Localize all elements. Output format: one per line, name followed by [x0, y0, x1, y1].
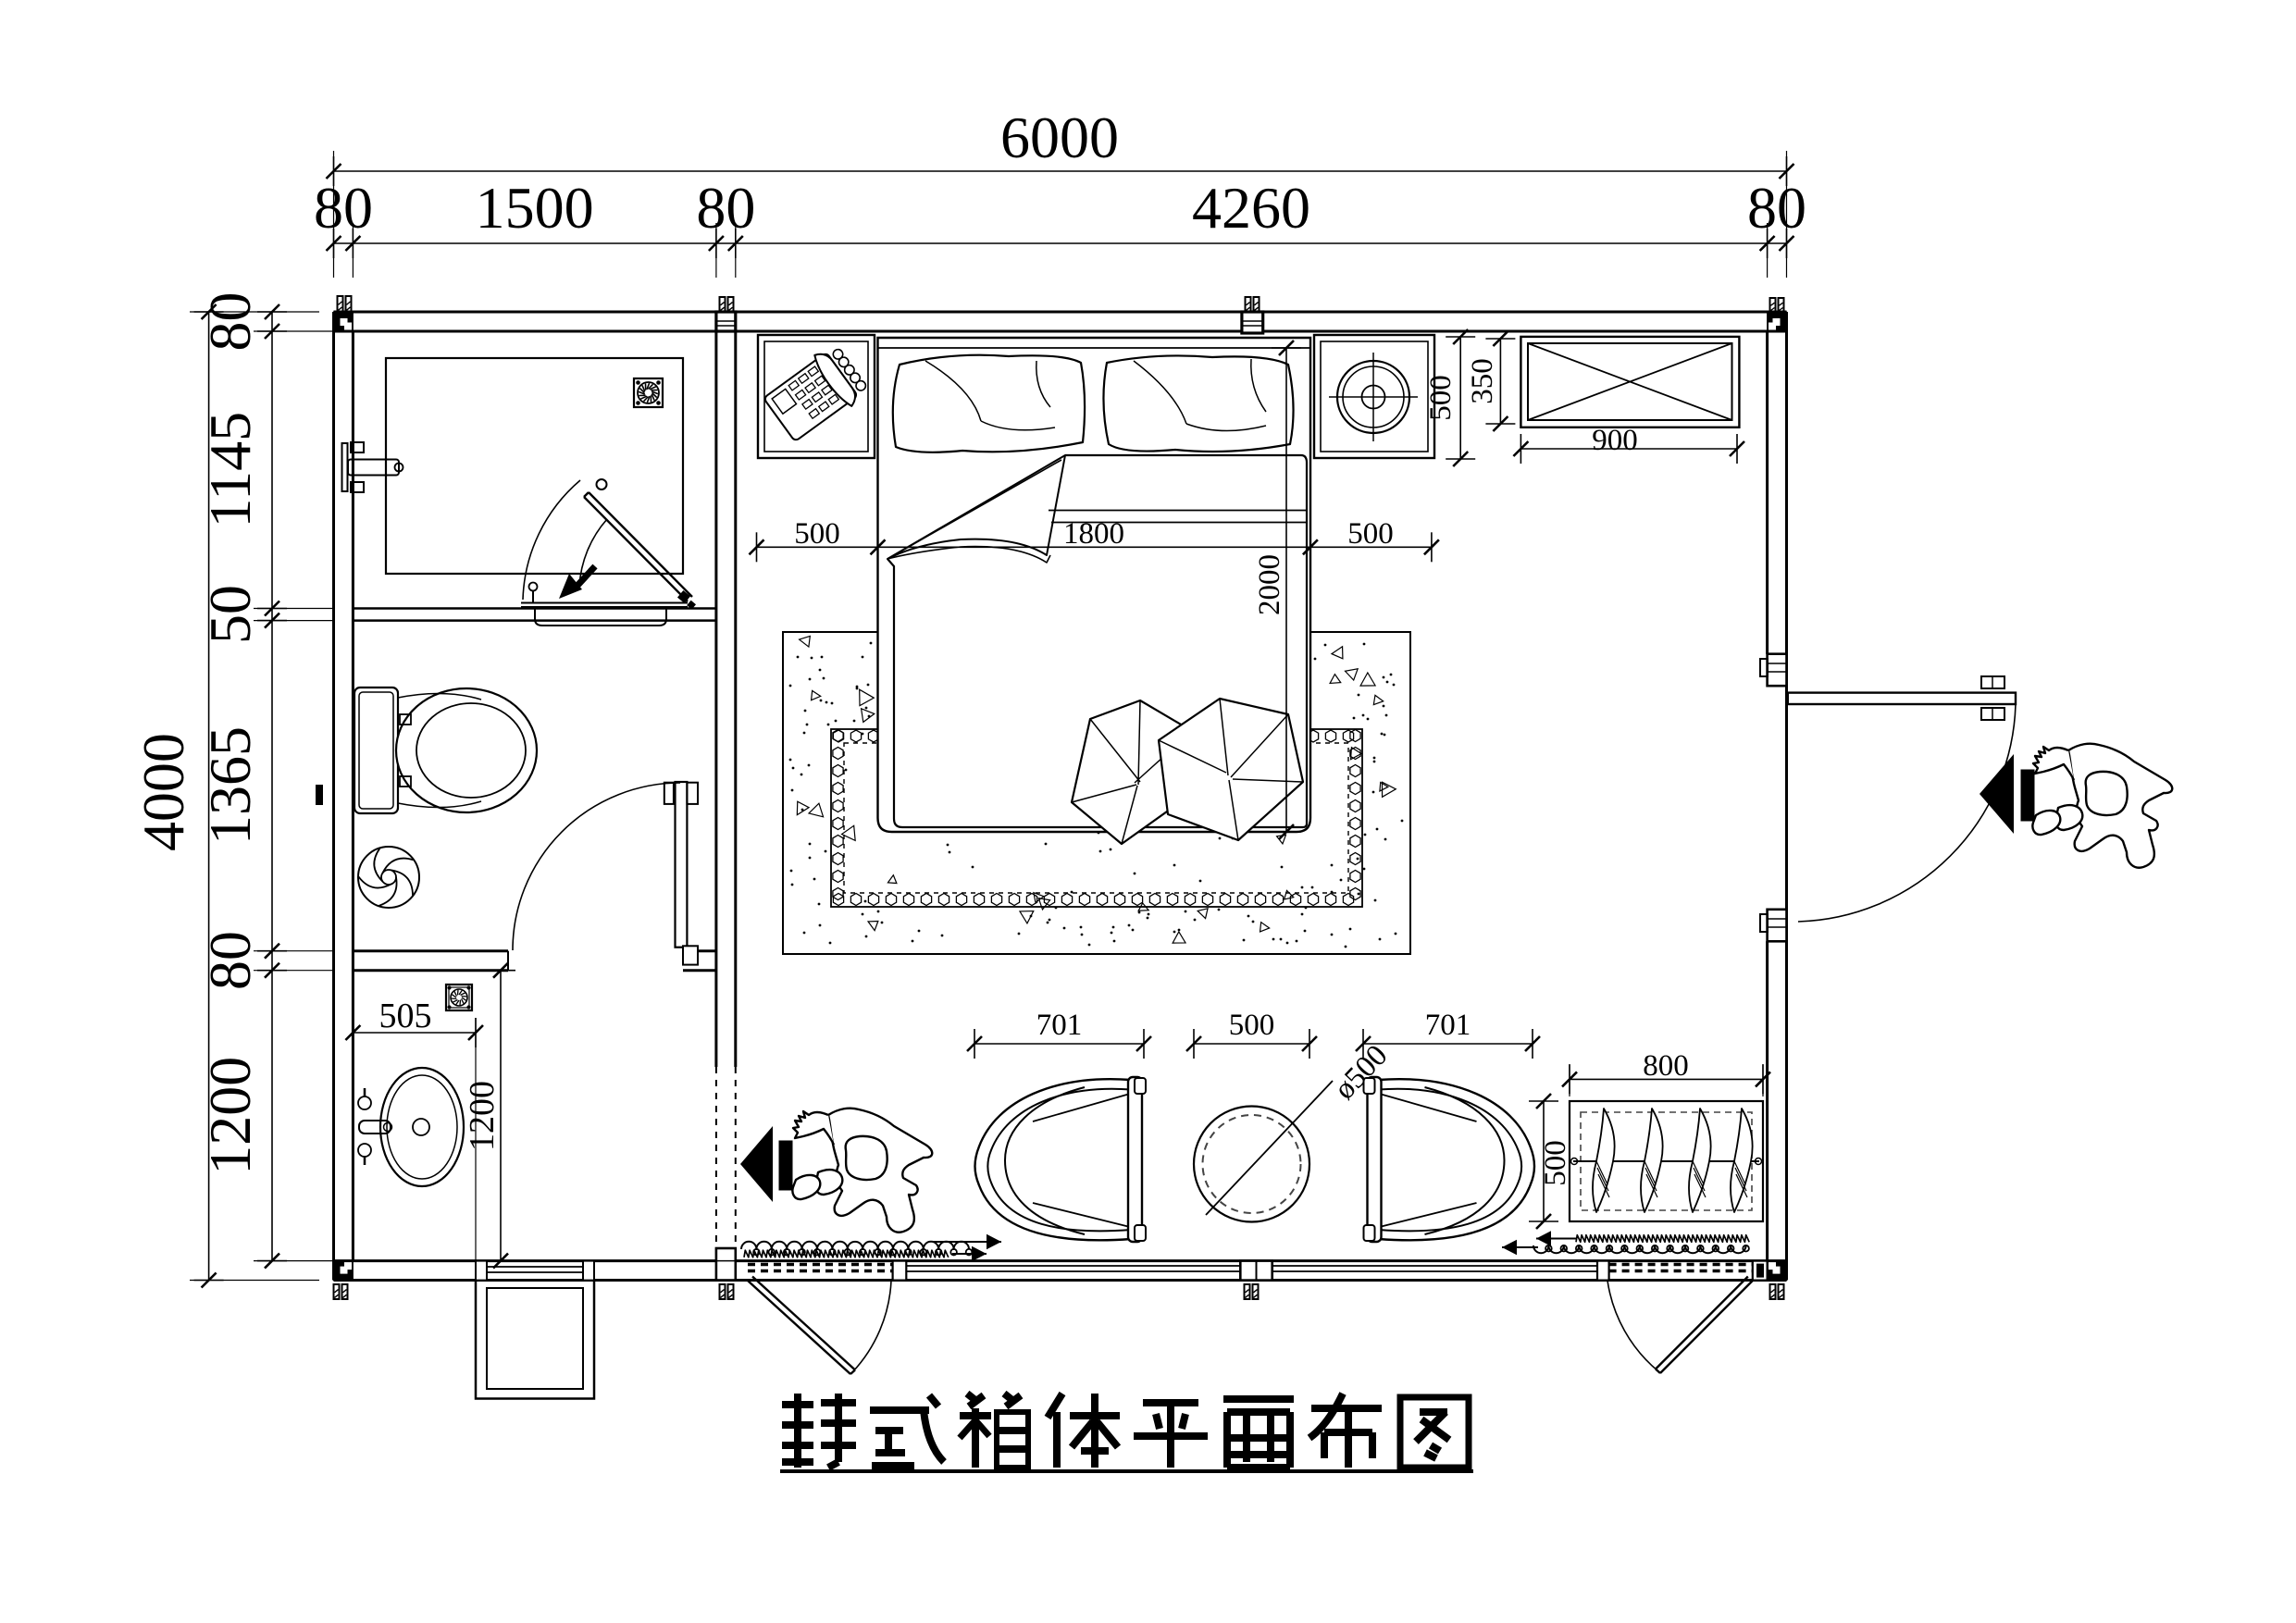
svg-text:1365: 1365	[197, 726, 263, 845]
svg-text:701: 701	[1425, 1009, 1471, 1042]
svg-text:80: 80	[1747, 175, 1806, 241]
svg-text:80: 80	[197, 292, 263, 352]
svg-text:80: 80	[696, 175, 755, 241]
svg-text:6000: 6000	[1000, 105, 1119, 170]
svg-text:50: 50	[197, 585, 263, 644]
svg-text:1145: 1145	[197, 412, 263, 528]
svg-text:1500: 1500	[476, 175, 594, 241]
svg-text:500: 500	[1424, 375, 1458, 421]
svg-text:500: 500	[794, 517, 840, 551]
svg-text:500: 500	[1539, 1140, 1572, 1186]
svg-text:505: 505	[379, 997, 432, 1035]
svg-text:350: 350	[1466, 358, 1499, 404]
svg-text:80: 80	[197, 931, 263, 990]
svg-text:500: 500	[1347, 517, 1394, 551]
svg-text:4000: 4000	[130, 733, 196, 851]
svg-text:500: 500	[1229, 1009, 1275, 1042]
svg-text:80: 80	[314, 175, 373, 241]
svg-text:701: 701	[1036, 1009, 1083, 1042]
svg-text:1800: 1800	[1063, 517, 1124, 551]
svg-text:900: 900	[1592, 424, 1638, 457]
svg-text:1200: 1200	[463, 1081, 502, 1151]
svg-text:1200: 1200	[197, 1057, 263, 1175]
svg-text:800: 800	[1643, 1049, 1689, 1083]
svg-text:2000: 2000	[1253, 554, 1286, 615]
svg-text:4260: 4260	[1192, 175, 1310, 241]
